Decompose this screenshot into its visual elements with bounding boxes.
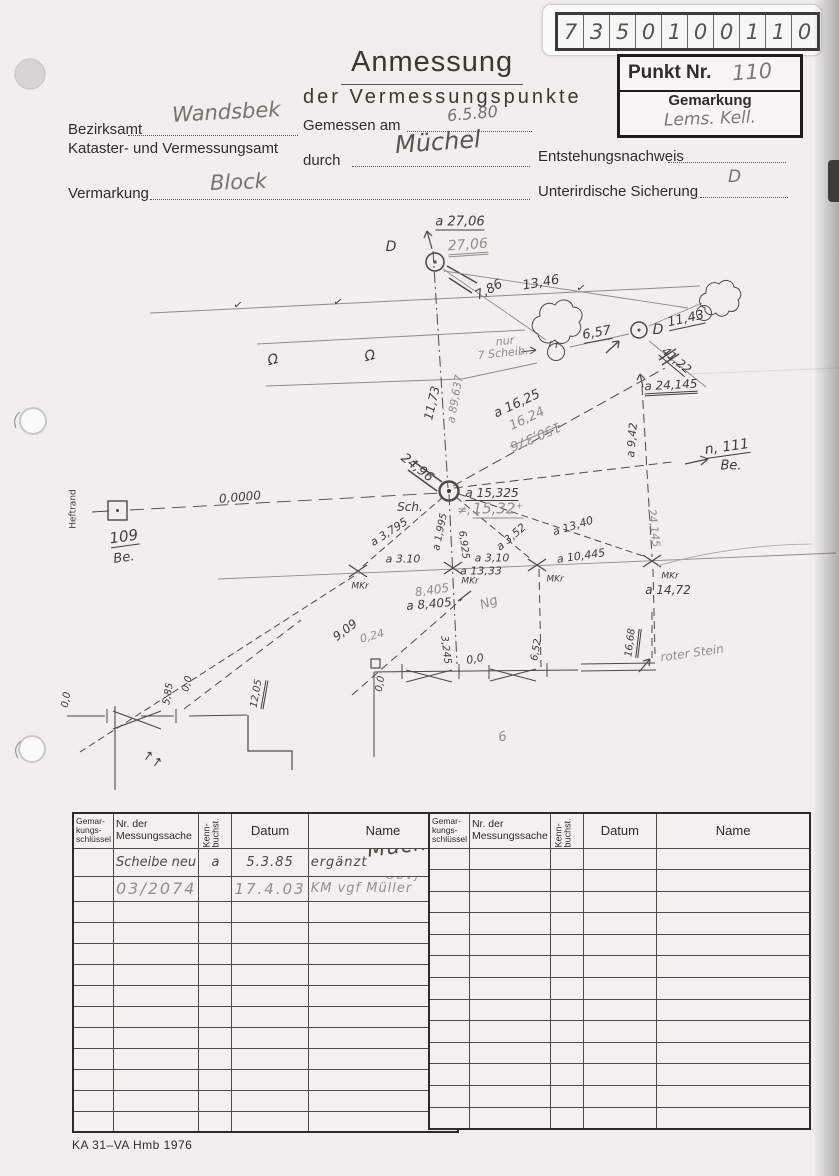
sketch-label: a 10,445: [556, 547, 606, 565]
sketch-label: D: [386, 240, 397, 254]
empty-row: [429, 934, 810, 956]
sketch-label: 109: [109, 528, 140, 549]
table-row: Scheibe neua5.3.85ergänztMüchel: [73, 848, 458, 876]
empty-row: [429, 891, 810, 913]
empty-row: [429, 956, 810, 978]
empty-row: [73, 1069, 458, 1090]
sketch-label: 6,52: [530, 638, 544, 662]
empty-row: [429, 848, 810, 870]
sketch-label: 24,145: [646, 508, 662, 548]
cell-datum: 5.3.85: [232, 848, 308, 876]
sketch-label: 6,57: [581, 324, 612, 344]
register-table: Gemar- kungs- schlüsselNr. der Messungss…: [428, 812, 811, 1130]
cell-kennbuchst: [199, 876, 232, 901]
empty-row: [73, 1111, 458, 1132]
empty-row: [429, 913, 810, 935]
sketch-label: 0,0: [375, 675, 388, 692]
sketch-label: ✓: [233, 299, 244, 311]
sketch-label: D: [653, 323, 664, 337]
sketch-label: a 8,405: [406, 596, 452, 612]
sketch-label: roter Stein: [660, 643, 725, 664]
sketch-label: 41,22: [658, 345, 693, 378]
sketch-label: 0,0: [465, 652, 484, 666]
sketch-label: 13,46: [522, 273, 561, 292]
sketch-label: 12,05: [250, 679, 269, 710]
sketch-label: a 24,145: [644, 378, 698, 397]
sketch-label: ↑↑: [139, 748, 164, 771]
header-datum: Datum: [583, 813, 656, 848]
sketch-label: a 13,40: [551, 515, 594, 538]
table-row: 03/207417.4.03KM vgf MüllerÖbVJ: [73, 876, 458, 901]
header-kennbuchst: Kenn- buchst.: [550, 813, 583, 848]
header-gemarkungsschluessel: Gemar- kungs- schlüssel: [429, 813, 469, 848]
name-note: ÖbVJ: [386, 876, 420, 882]
empty-row: [429, 999, 810, 1021]
sketch-label: a 3,52: [494, 522, 528, 553]
cell-messungssache: Scheibe neu: [113, 848, 198, 876]
empty-row: [73, 964, 458, 985]
header-nr-messungssache: Nr. der Messungssache: [469, 813, 550, 848]
sketch-label: a 89,637: [445, 374, 464, 424]
sketch-label: 9,09: [331, 617, 360, 643]
sketch-label: MKr: [351, 583, 368, 592]
sketch-label: 15,32⁺: [473, 502, 524, 519]
sketch-label: 0,24: [359, 628, 386, 645]
sketch-label: a 9,42: [625, 422, 639, 458]
sketch-label: 11,73: [422, 385, 441, 421]
sketch-label: ≠,: [457, 504, 471, 516]
form-code-footer: KA 31–VA Hmb 1976: [72, 1138, 192, 1152]
scanned-survey-form: 7350100110 Punkt Nr. 110 Gemarkung Lems.…: [0, 0, 839, 1176]
sketch-label: 5,85: [162, 682, 176, 706]
sketch-label: 24,96: [398, 451, 435, 484]
sketch-label: Sch.: [397, 501, 423, 513]
cell-datum: 17.4.03: [232, 876, 308, 901]
sketch-label: Be.: [720, 460, 741, 473]
sketch-label: 3,245: [438, 635, 451, 665]
empty-row: [73, 901, 458, 922]
empty-row: [429, 1107, 810, 1129]
empty-row: [429, 1064, 810, 1086]
header-gemarkungsschluessel: Gemar- kungs- schlüssel: [73, 813, 113, 848]
sketch-label: a 3,795: [369, 516, 410, 548]
sketch-label: 7,86: [473, 277, 505, 302]
measurement-table-left: Gemar- kungs- schlüsselNr. der Messungss…: [72, 812, 459, 1133]
sketch-label: Ng: [478, 594, 499, 612]
cell-kennbuchst: a: [199, 848, 232, 876]
empty-row: [73, 943, 458, 964]
sketch-label: MKr: [546, 576, 563, 585]
empty-row: [73, 922, 458, 943]
measurement-table-right: Gemar- kungs- schlüsselNr. der Messungss…: [428, 812, 811, 1130]
sketch-label: a 13,33: [460, 566, 502, 577]
empty-row: [73, 985, 458, 1006]
sketch-label: a 3.10: [386, 554, 421, 565]
sketch-label: a 3,10: [475, 553, 510, 564]
scan-edge-notch: [828, 160, 839, 202]
sketch-label: MKr: [661, 573, 678, 582]
sketch-label: n, 111: [704, 437, 750, 459]
header-nr-messungssache: Nr. der Messungssache: [113, 813, 198, 848]
header-name: Name: [656, 813, 810, 848]
sketch-label: a 1,995: [432, 512, 450, 551]
cell-messungssache: 03/2074: [113, 876, 198, 901]
header-datum: Datum: [232, 813, 308, 848]
sketch-label: 0,0: [61, 691, 74, 708]
sketch-label: a 14,72: [645, 584, 691, 596]
empty-row: [73, 1027, 458, 1048]
header-kennbuchst: Kenn- buchst.: [199, 813, 232, 848]
sketch-label: ✓: [333, 296, 344, 308]
empty-row: [429, 1021, 810, 1043]
sketch-label: a 27,06: [435, 216, 484, 231]
sketch-label: 9: [496, 728, 507, 743]
empty-row: [429, 1086, 810, 1108]
empty-row: [429, 870, 810, 892]
sketch-label: 0,0: [181, 675, 195, 693]
register-table: Gemar- kungs- schlüsselNr. der Messungss…: [72, 812, 459, 1133]
sketch-label: Be.: [113, 550, 136, 566]
empty-row: [73, 1090, 458, 1111]
sketch-label: 6,925: [456, 530, 470, 560]
sketch-label: 16,68: [624, 628, 641, 658]
sketch-label: MKr: [461, 578, 478, 587]
empty-row: [429, 1042, 810, 1064]
sketch-label: 7 Scheib.: [477, 345, 529, 361]
empty-row: [429, 978, 810, 1000]
sketch-label: 0,0000: [219, 489, 262, 505]
sketch-label: Ω: [266, 352, 280, 368]
sketch-label: ✓: [576, 282, 587, 294]
empty-row: [73, 1006, 458, 1027]
sketch-label: 11,43: [666, 309, 706, 331]
empty-row: [73, 1048, 458, 1069]
sketch-label: Heftrand: [70, 489, 79, 528]
sketch-label: 27,06: [447, 237, 488, 258]
sketch-annotations: a 27,0627,06D13,467,86✓✓✓ΩΩnur7 Scheib.6…: [0, 0, 839, 800]
sketch-label: Ω: [363, 348, 377, 364]
